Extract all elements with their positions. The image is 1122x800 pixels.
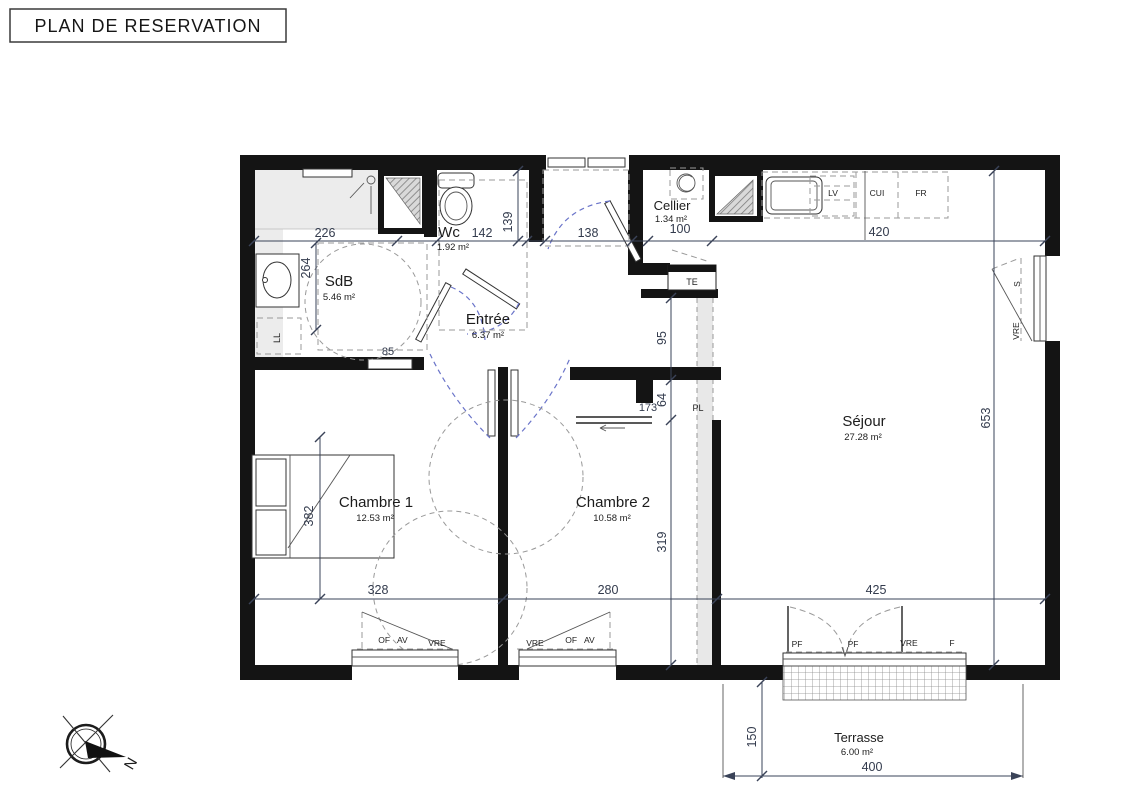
room-label-sejour: Séjour bbox=[842, 413, 885, 430]
dim-138: 138 bbox=[578, 226, 599, 240]
dim-653: 653 bbox=[979, 408, 993, 429]
window1-vre-label: VRE bbox=[428, 638, 446, 648]
kitchen-sink bbox=[766, 177, 822, 214]
dim-226: 226 bbox=[315, 226, 336, 240]
terrace-threshold-grid bbox=[783, 666, 966, 700]
room-area-terrasse: 6.00 m² bbox=[841, 747, 873, 758]
window2-vre-label: VRE bbox=[526, 638, 544, 648]
room-label-terrasse: Terrasse bbox=[834, 730, 884, 745]
dim-85: 85 bbox=[382, 346, 394, 358]
dim-328: 328 bbox=[368, 583, 389, 597]
dim-150: 150 bbox=[745, 727, 759, 748]
shower-sdb bbox=[378, 170, 428, 234]
toilet bbox=[438, 173, 474, 225]
room-label-chambre1: Chambre 1 bbox=[339, 494, 413, 511]
room-area-sdb: 5.46 m² bbox=[323, 292, 355, 303]
electrical-board: TE bbox=[668, 250, 716, 290]
floor-plan-page: PLAN DE RESERVATION bbox=[0, 0, 1122, 800]
sdb-pocket-door-panel bbox=[368, 359, 412, 369]
chambre1-door-leaf bbox=[488, 370, 495, 436]
pl-label: PL bbox=[692, 403, 703, 413]
chambre2-door-leaf bbox=[511, 370, 518, 436]
dim-264: 264 bbox=[299, 258, 313, 279]
bay-f-label: F bbox=[949, 638, 954, 648]
page-title: PLAN DE RESERVATION bbox=[34, 16, 261, 36]
window-chambre2: VRE OF AV bbox=[517, 612, 616, 666]
dim-173: 173 bbox=[639, 402, 657, 414]
dim-425: 425 bbox=[866, 583, 887, 597]
room-area-cellier: 1.34 m² bbox=[655, 214, 687, 225]
kitchen-counter: LV CUI FR bbox=[762, 171, 948, 240]
floor-plan-drawing: PLAN DE RESERVATION bbox=[0, 0, 1122, 800]
dim-420: 420 bbox=[869, 225, 890, 239]
room-label-wc: Wc bbox=[438, 224, 460, 241]
room-area-entree: 6.37 m² bbox=[472, 330, 504, 341]
window-east-s-label: S bbox=[1012, 281, 1022, 287]
sliding-door-arrow bbox=[600, 425, 625, 431]
shower-cellier bbox=[709, 170, 763, 222]
room-label-entree: Entrée bbox=[466, 311, 510, 328]
room-label-chambre2: Chambre 2 bbox=[576, 494, 650, 511]
terrace-bay: PF PF VRE F bbox=[783, 606, 966, 700]
bay-pf2-label: PF bbox=[848, 639, 859, 649]
window-chambre1: OF AV VRE bbox=[352, 612, 458, 666]
fr-label: FR bbox=[915, 188, 926, 198]
cui-label: CUI bbox=[870, 188, 885, 198]
te-label: TE bbox=[686, 277, 698, 287]
lv-label: LV bbox=[828, 188, 838, 198]
compass-north-label: N bbox=[121, 755, 141, 773]
bay-vre-label: VRE bbox=[900, 638, 918, 648]
dim-319: 319 bbox=[655, 532, 669, 553]
dim-382: 382 bbox=[302, 506, 316, 527]
window1-type-label: OF AV bbox=[378, 635, 408, 645]
dim-142: 142 bbox=[472, 226, 493, 240]
room-area-chambre2: 10.58 m² bbox=[593, 513, 631, 524]
room-area-sejour: 27.28 m² bbox=[844, 432, 882, 443]
window-sejour-east: S VRE bbox=[992, 256, 1046, 341]
bay-pf1-label: PF bbox=[792, 639, 803, 649]
ll-label: LL bbox=[272, 333, 282, 343]
room-label-cellier: Cellier bbox=[654, 198, 692, 213]
wc-door-leaf bbox=[463, 269, 520, 309]
dim-95: 95 bbox=[655, 331, 669, 345]
dim-400: 400 bbox=[862, 760, 883, 774]
window2-type-label: OF AV bbox=[565, 635, 595, 645]
compass: N bbox=[60, 715, 141, 773]
dim-139: 139 bbox=[501, 212, 515, 233]
room-area-chambre1: 12.53 m² bbox=[356, 513, 394, 524]
title-block: PLAN DE RESERVATION bbox=[10, 9, 286, 42]
room-label-sdb: SdB bbox=[325, 273, 353, 290]
room-area-wc: 1.92 m² bbox=[437, 242, 469, 253]
window-east-vre-label: VRE bbox=[1011, 322, 1021, 340]
sdb-door-leaf bbox=[416, 283, 451, 342]
vmc-unit bbox=[670, 168, 703, 199]
dim-280: 280 bbox=[598, 583, 619, 597]
bathroom-sink bbox=[256, 254, 299, 307]
